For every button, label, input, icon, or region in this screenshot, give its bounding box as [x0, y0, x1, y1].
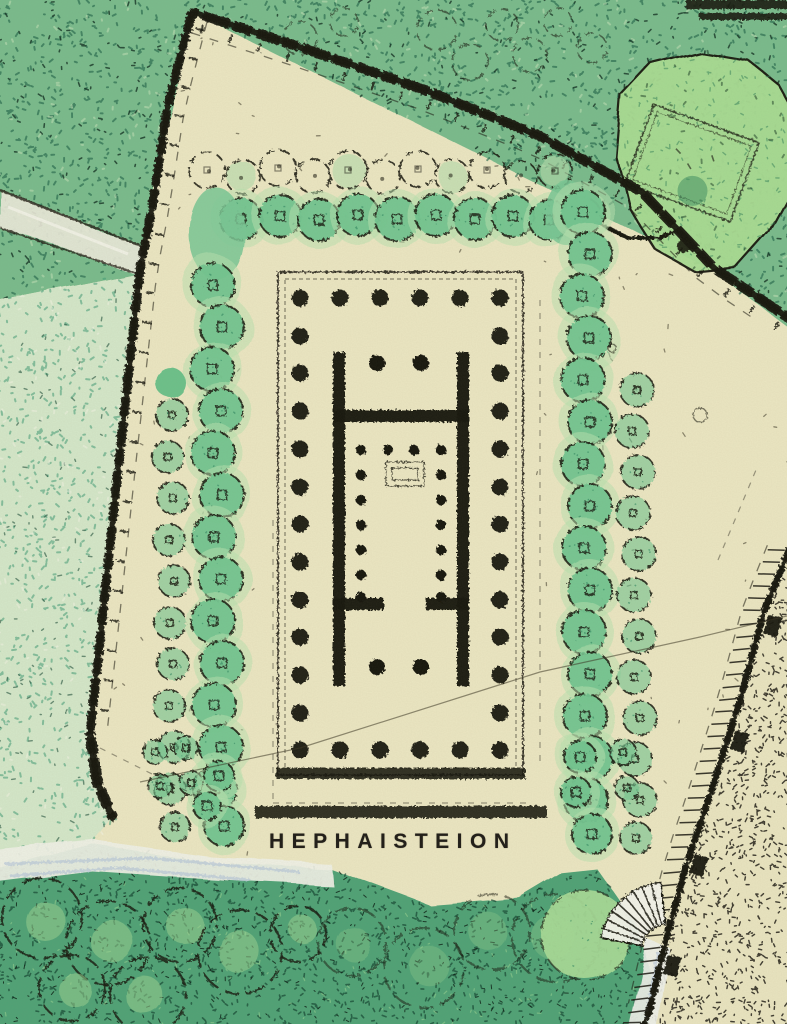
temple-label: HEPHAISTEION [269, 830, 517, 854]
map-canvas [0, 0, 787, 1024]
paper-grain [0, 0, 787, 1024]
site-map: HEPHAISTEION [0, 0, 787, 1024]
